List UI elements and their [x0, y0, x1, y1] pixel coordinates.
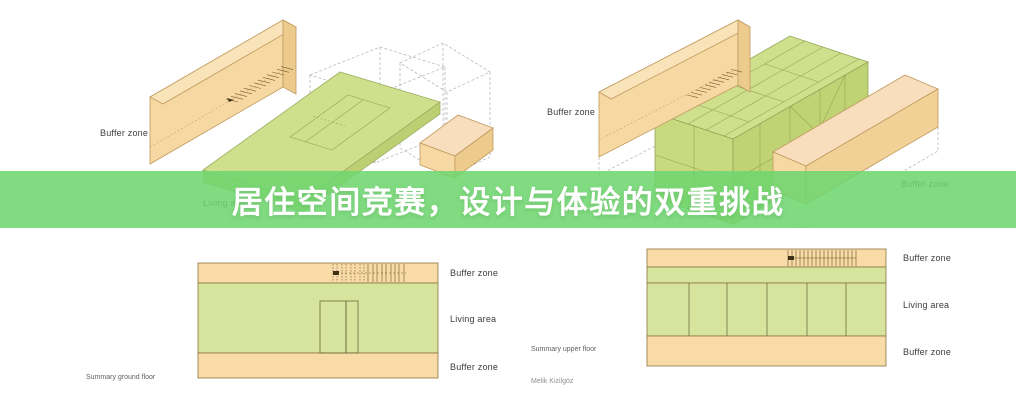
plan-upper-zone-label: Buffer zone	[903, 347, 951, 357]
author-credit: Melik Kizilgöz	[531, 378, 573, 385]
plan-ground-zone-label: Buffer zone	[450, 362, 498, 372]
title-banner: 居住空间竞赛，设计与体验的双重挑战	[0, 171, 1016, 228]
article-title: 居住空间竞赛，设计与体验的双重挑战	[232, 177, 785, 222]
plan-ground-zone-label: Living area	[450, 314, 496, 324]
plan-ground-zone-label: Buffer zone	[450, 268, 498, 278]
plan-upper-floor	[645, 247, 890, 369]
plan-ground-caption: Summary ground floor	[86, 374, 155, 381]
axon-upper-buffer-left-label: Buffer zone	[547, 107, 595, 117]
plan-upper-zone-label: Buffer zone	[903, 253, 951, 263]
plan-upper-caption: Summary upper floor	[531, 346, 596, 353]
axon-ground-buffer-label: Buffer zone	[100, 128, 148, 138]
plan-ground-floor	[195, 260, 445, 385]
hero-image: Buffer zone Living area Buffer zone Buff…	[0, 0, 1016, 400]
buffer-slab-small	[420, 115, 493, 178]
plan-upper-zone-label: Living area	[903, 300, 949, 310]
